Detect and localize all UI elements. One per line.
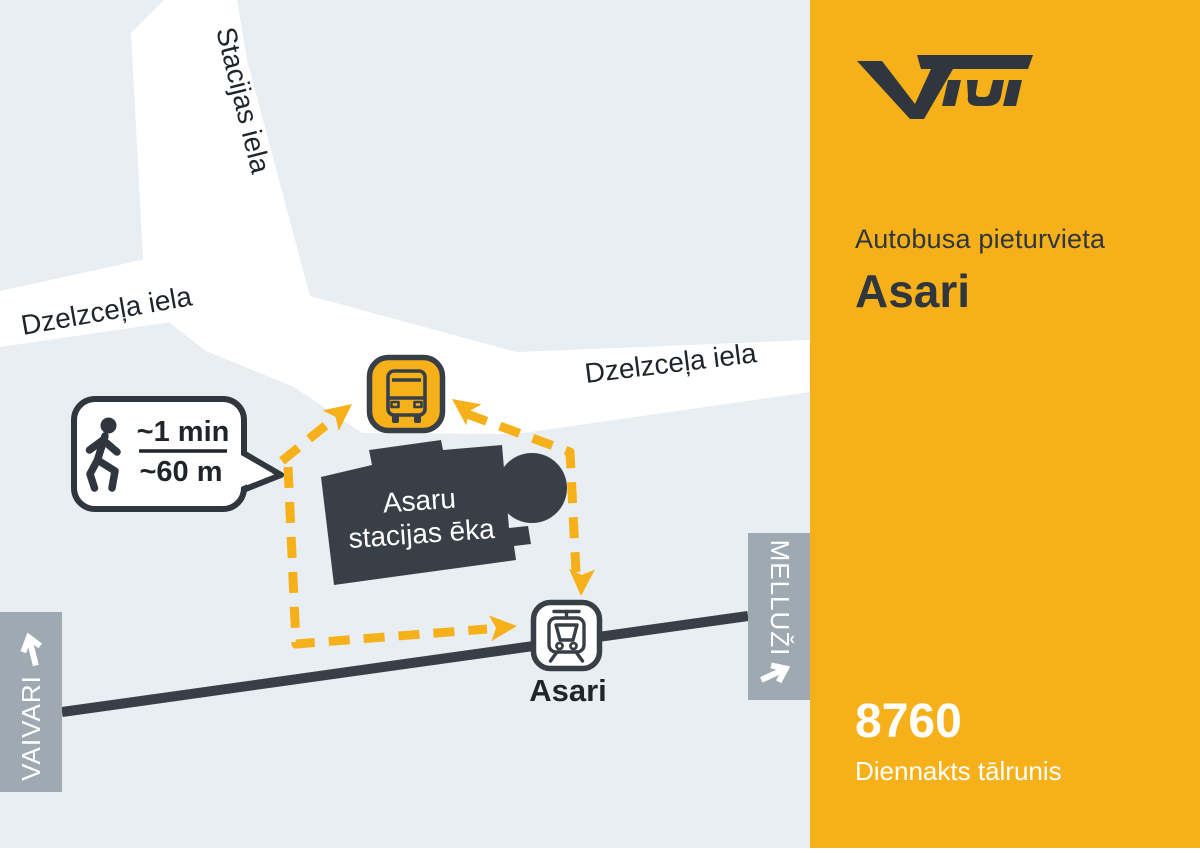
walk-time: ~1 min xyxy=(137,416,230,448)
station-building-tower xyxy=(497,453,567,523)
train-station-label: Asari xyxy=(529,673,607,708)
info-sidebar: Autobusa pieturvieta Asari 8760 Diennakt… xyxy=(810,0,1200,848)
phone-caption: Diennakts tālrunis xyxy=(855,756,1062,787)
direction-box-vaivari: VAIVARI xyxy=(0,612,62,792)
stop-name-title: Asari xyxy=(855,264,970,318)
building-label-line1: Asaru xyxy=(382,483,457,519)
vidi-logo xyxy=(855,52,1035,124)
train-station-icon xyxy=(534,603,600,669)
phone-number: 8760 xyxy=(855,694,962,749)
bus-stop-icon xyxy=(370,358,443,431)
map-canvas: Stacijas iela Dzelzceļa iela Dzelzceļa i… xyxy=(0,0,810,848)
stop-type-subtitle: Autobusa pieturvieta xyxy=(855,224,1105,255)
bus-stop-info-poster: Stacijas iela Dzelzceļa iela Dzelzceļa i… xyxy=(0,0,1200,848)
direction-box-melluzi: MELLUŽI xyxy=(748,533,810,700)
walk-distance: ~60 m xyxy=(139,456,222,488)
rail-direction-left-label: VAIVARI xyxy=(16,675,46,781)
station-map: Stacijas iela Dzelzceļa iela Dzelzceļa i… xyxy=(0,0,810,848)
rail-direction-right-label: MELLUŽI xyxy=(765,540,795,657)
